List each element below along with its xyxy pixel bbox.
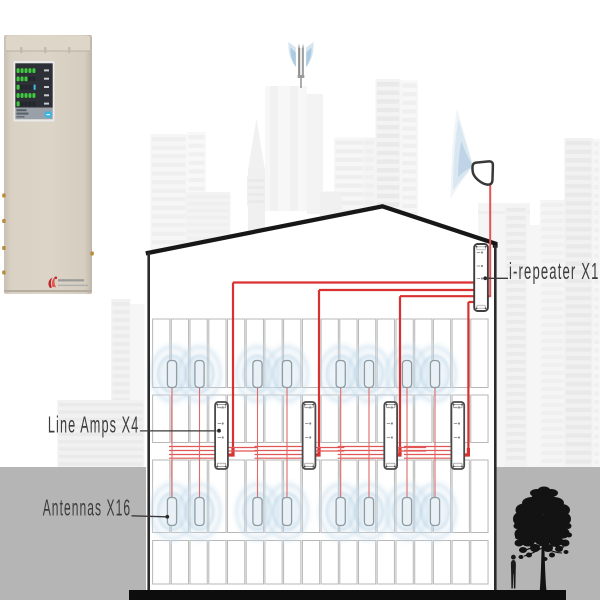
svg-text:Antennas X16: Antennas X16 bbox=[43, 494, 132, 520]
svg-text:Line Amps X4: Line Amps X4 bbox=[48, 411, 139, 437]
svg-text:i-repeater X1: i-repeater X1 bbox=[509, 258, 600, 284]
